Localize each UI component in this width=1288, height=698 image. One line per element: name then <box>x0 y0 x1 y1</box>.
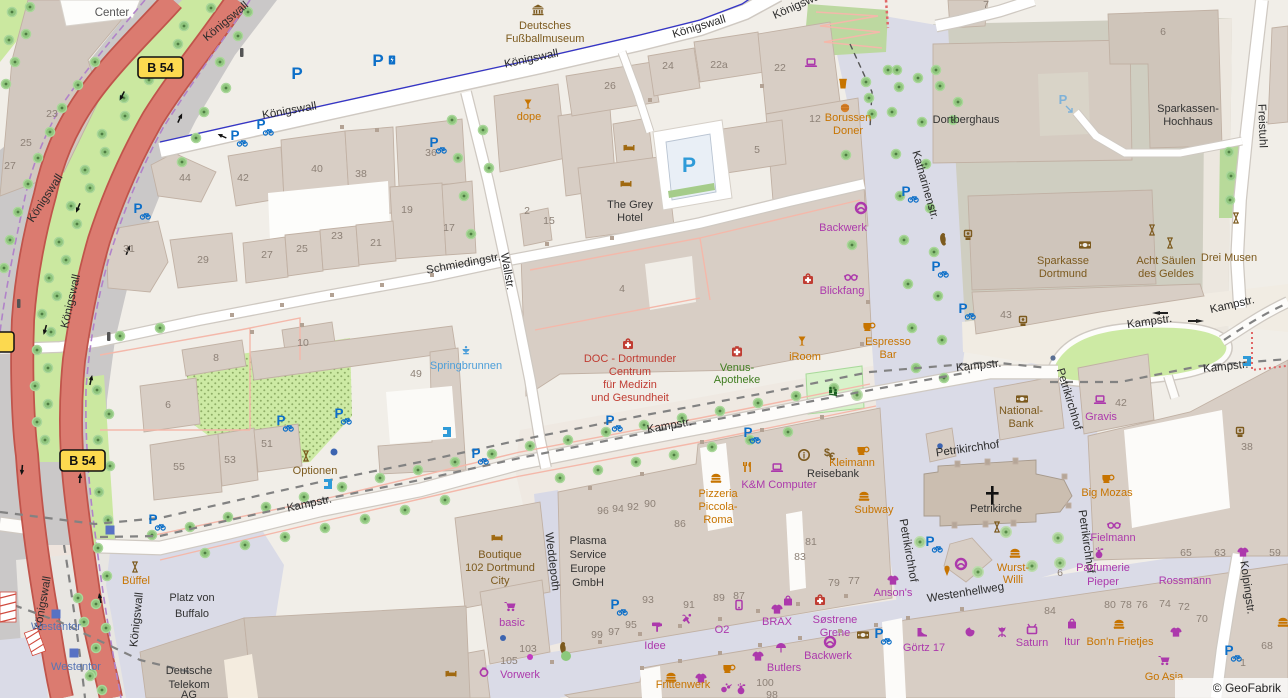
svg-text:22a: 22a <box>710 59 728 71</box>
svg-text:© GeoFabrik: © GeoFabrik <box>1213 681 1282 695</box>
svg-text:iRoom: iRoom <box>789 351 821 363</box>
svg-text:102 Dortmund: 102 Dortmund <box>465 562 535 574</box>
svg-text:77: 77 <box>848 575 860 587</box>
svg-text:49: 49 <box>410 368 422 380</box>
svg-text:100: 100 <box>756 677 774 689</box>
svg-text:Butlers: Butlers <box>767 662 802 674</box>
svg-text:Deutsche: Deutsche <box>166 665 212 677</box>
svg-text:96: 96 <box>597 505 609 517</box>
svg-text:74: 74 <box>1159 598 1171 610</box>
svg-text:26: 26 <box>604 80 616 92</box>
svg-text:Espresso: Espresso <box>865 336 911 348</box>
svg-text:Reisebank: Reisebank <box>807 468 859 480</box>
svg-text:National-: National- <box>999 405 1043 417</box>
svg-text:Optionen: Optionen <box>293 465 338 477</box>
svg-text:Blickfang: Blickfang <box>820 285 865 297</box>
svg-text:Fußballmuseum: Fußballmuseum <box>506 33 585 45</box>
svg-text:K&M Computer: K&M Computer <box>741 479 817 491</box>
svg-text:99: 99 <box>591 629 603 641</box>
svg-text:12: 12 <box>809 113 821 125</box>
svg-text:8: 8 <box>213 352 219 364</box>
svg-text:Dortmund: Dortmund <box>1039 268 1087 280</box>
svg-text:Plasma: Plasma <box>570 535 608 547</box>
svg-text:93: 93 <box>642 594 654 606</box>
svg-text:Buffalo: Buffalo <box>175 608 209 620</box>
svg-text:B 54: B 54 <box>69 454 95 468</box>
svg-text:36: 36 <box>425 147 437 159</box>
svg-text:59: 59 <box>1269 547 1281 559</box>
svg-text:84: 84 <box>1044 605 1056 617</box>
svg-text:Doner: Doner <box>833 125 863 137</box>
svg-text:O2: O2 <box>715 624 730 636</box>
svg-text:Center: Center <box>95 7 130 19</box>
svg-text:Hotel: Hotel <box>617 212 643 224</box>
svg-text:105: 105 <box>500 655 518 667</box>
svg-text:Willi: Willi <box>1003 574 1023 586</box>
svg-text:23: 23 <box>46 108 58 120</box>
svg-text:103: 103 <box>519 643 537 655</box>
svg-text:25: 25 <box>20 137 32 149</box>
svg-text:Sparkasse: Sparkasse <box>1037 255 1089 267</box>
svg-text:Anson's: Anson's <box>874 587 913 599</box>
svg-text:65: 65 <box>1180 547 1192 559</box>
svg-text:6: 6 <box>1160 26 1166 38</box>
svg-text:basic: basic <box>499 617 525 629</box>
svg-text:Apotheke: Apotheke <box>714 374 760 386</box>
svg-text:19: 19 <box>401 204 413 216</box>
svg-text:80: 80 <box>1104 599 1116 611</box>
svg-text:55: 55 <box>173 461 185 473</box>
svg-text:72: 72 <box>1178 601 1190 613</box>
svg-text:38: 38 <box>355 168 367 180</box>
svg-text:81: 81 <box>805 536 817 548</box>
svg-text:68: 68 <box>1261 640 1273 652</box>
svg-text:Görtz 17: Görtz 17 <box>903 642 945 654</box>
svg-text:Bank: Bank <box>1008 418 1034 430</box>
svg-text:86: 86 <box>674 518 686 530</box>
svg-text:Petrikirche: Petrikirche <box>970 503 1022 515</box>
svg-text:6: 6 <box>1057 567 1063 579</box>
svg-text:P: P <box>682 154 696 177</box>
svg-text:90: 90 <box>644 498 656 510</box>
svg-text:Sparkassen-: Sparkassen- <box>1157 103 1219 115</box>
svg-text:10: 10 <box>297 337 309 349</box>
svg-text:Springbrunnen: Springbrunnen <box>430 360 502 372</box>
svg-text:Venus-: Venus- <box>720 362 755 374</box>
svg-text:Drei Musen: Drei Musen <box>1201 252 1257 264</box>
svg-text:und Gesundheit: und Gesundheit <box>591 392 669 404</box>
svg-text:Deutsches: Deutsches <box>519 20 571 32</box>
svg-text:Pieper: Pieper <box>1087 576 1119 588</box>
svg-text:Bon'n Frietjes: Bon'n Frietjes <box>1087 636 1154 648</box>
svg-text:Dortberghaus: Dortberghaus <box>933 114 1000 126</box>
svg-text:24: 24 <box>662 60 674 72</box>
svg-text:17: 17 <box>443 222 455 234</box>
svg-text:für Medizin: für Medizin <box>603 379 657 391</box>
svg-text:29: 29 <box>197 254 209 266</box>
svg-text:40: 40 <box>311 163 323 175</box>
svg-text:Borussen: Borussen <box>825 112 871 124</box>
svg-text:87: 87 <box>733 590 745 602</box>
svg-text:Bar: Bar <box>879 349 896 361</box>
svg-text:Subway: Subway <box>854 504 894 516</box>
svg-text:63: 63 <box>1214 547 1226 559</box>
svg-text:GmbH: GmbH <box>572 577 604 589</box>
svg-text:Frittenwerk: Frittenwerk <box>656 679 711 691</box>
svg-text:95: 95 <box>625 619 637 631</box>
svg-text:22: 22 <box>774 62 786 74</box>
svg-text:City: City <box>491 575 510 587</box>
svg-text:The Grey: The Grey <box>607 199 653 211</box>
svg-text:1: 1 <box>1240 657 1246 669</box>
svg-text:15: 15 <box>543 215 555 227</box>
svg-text:Backwerk: Backwerk <box>804 650 852 662</box>
svg-text:42: 42 <box>1115 397 1127 409</box>
svg-text:Boutique: Boutique <box>478 549 521 561</box>
svg-text:89: 89 <box>713 592 725 604</box>
svg-text:Grene: Grene <box>820 627 851 639</box>
svg-text:6: 6 <box>165 399 171 411</box>
svg-text:25: 25 <box>296 243 308 255</box>
svg-text:des Geldes: des Geldes <box>1138 268 1194 280</box>
svg-text:98: 98 <box>766 689 778 698</box>
svg-text:Service: Service <box>570 549 607 561</box>
svg-text:BRAX: BRAX <box>762 616 793 628</box>
svg-text:Søstrene: Søstrene <box>813 614 858 626</box>
svg-text:Platz von: Platz von <box>169 592 214 604</box>
svg-text:79: 79 <box>828 577 840 589</box>
svg-text:Rossmann: Rossmann <box>1159 575 1212 587</box>
svg-text:78: 78 <box>1120 599 1132 611</box>
svg-text:38: 38 <box>1241 441 1253 453</box>
svg-text:51: 51 <box>261 438 273 450</box>
svg-text:42: 42 <box>237 172 249 184</box>
svg-text:5: 5 <box>754 144 760 156</box>
svg-text:Centrum: Centrum <box>609 366 651 378</box>
svg-text:Parfumerie: Parfumerie <box>1076 562 1130 574</box>
svg-text:83: 83 <box>794 551 806 563</box>
svg-text:Roma: Roma <box>703 514 733 526</box>
svg-text:Hochhaus: Hochhaus <box>1163 116 1213 128</box>
svg-text:70: 70 <box>1196 613 1208 625</box>
svg-text:27: 27 <box>261 249 273 261</box>
svg-text:B 54: B 54 <box>147 61 173 75</box>
svg-text:44: 44 <box>179 172 191 184</box>
svg-text:23: 23 <box>331 230 343 242</box>
svg-text:91: 91 <box>683 599 695 611</box>
svg-text:dope: dope <box>517 111 541 123</box>
svg-text:Europe: Europe <box>570 563 605 575</box>
svg-text:97: 97 <box>608 626 620 638</box>
svg-text:Big Mozas: Big Mozas <box>1081 487 1133 499</box>
svg-text:27: 27 <box>4 160 16 172</box>
svg-text:4: 4 <box>619 283 625 295</box>
svg-text:Westentor: Westentor <box>51 661 101 673</box>
svg-text:DOC - Dortmunder: DOC - Dortmunder <box>584 353 677 365</box>
svg-text:Piccola-: Piccola- <box>698 501 737 513</box>
svg-text:43: 43 <box>1000 309 1012 321</box>
svg-text:Büffel: Büffel <box>122 575 150 587</box>
svg-text:2: 2 <box>524 205 530 217</box>
svg-text:P: P <box>1059 92 1068 107</box>
svg-text:21: 21 <box>370 237 382 249</box>
svg-text:Saturn: Saturn <box>1016 637 1048 649</box>
svg-text:Fielmann: Fielmann <box>1090 532 1135 544</box>
svg-text:Freistuhl: Freistuhl <box>1255 104 1269 149</box>
svg-text:Vorwerk: Vorwerk <box>500 669 540 681</box>
svg-text:94: 94 <box>612 503 624 515</box>
svg-text:Gravis: Gravis <box>1085 411 1117 423</box>
svg-text:7: 7 <box>983 0 989 11</box>
svg-text:Wurst-: Wurst- <box>997 562 1030 574</box>
svg-text:53: 53 <box>224 454 236 466</box>
svg-text:Backwerk: Backwerk <box>819 222 867 234</box>
svg-text:Pizzeria: Pizzeria <box>698 488 738 500</box>
svg-text:Itur: Itur <box>1064 636 1080 648</box>
svg-text:31: 31 <box>123 243 135 255</box>
svg-text:76: 76 <box>1136 599 1148 611</box>
svg-text:92: 92 <box>627 501 639 513</box>
svg-text:Acht Säulen: Acht Säulen <box>1136 255 1195 267</box>
svg-text:AG: AG <box>181 689 197 698</box>
svg-text:Idee: Idee <box>644 640 665 652</box>
